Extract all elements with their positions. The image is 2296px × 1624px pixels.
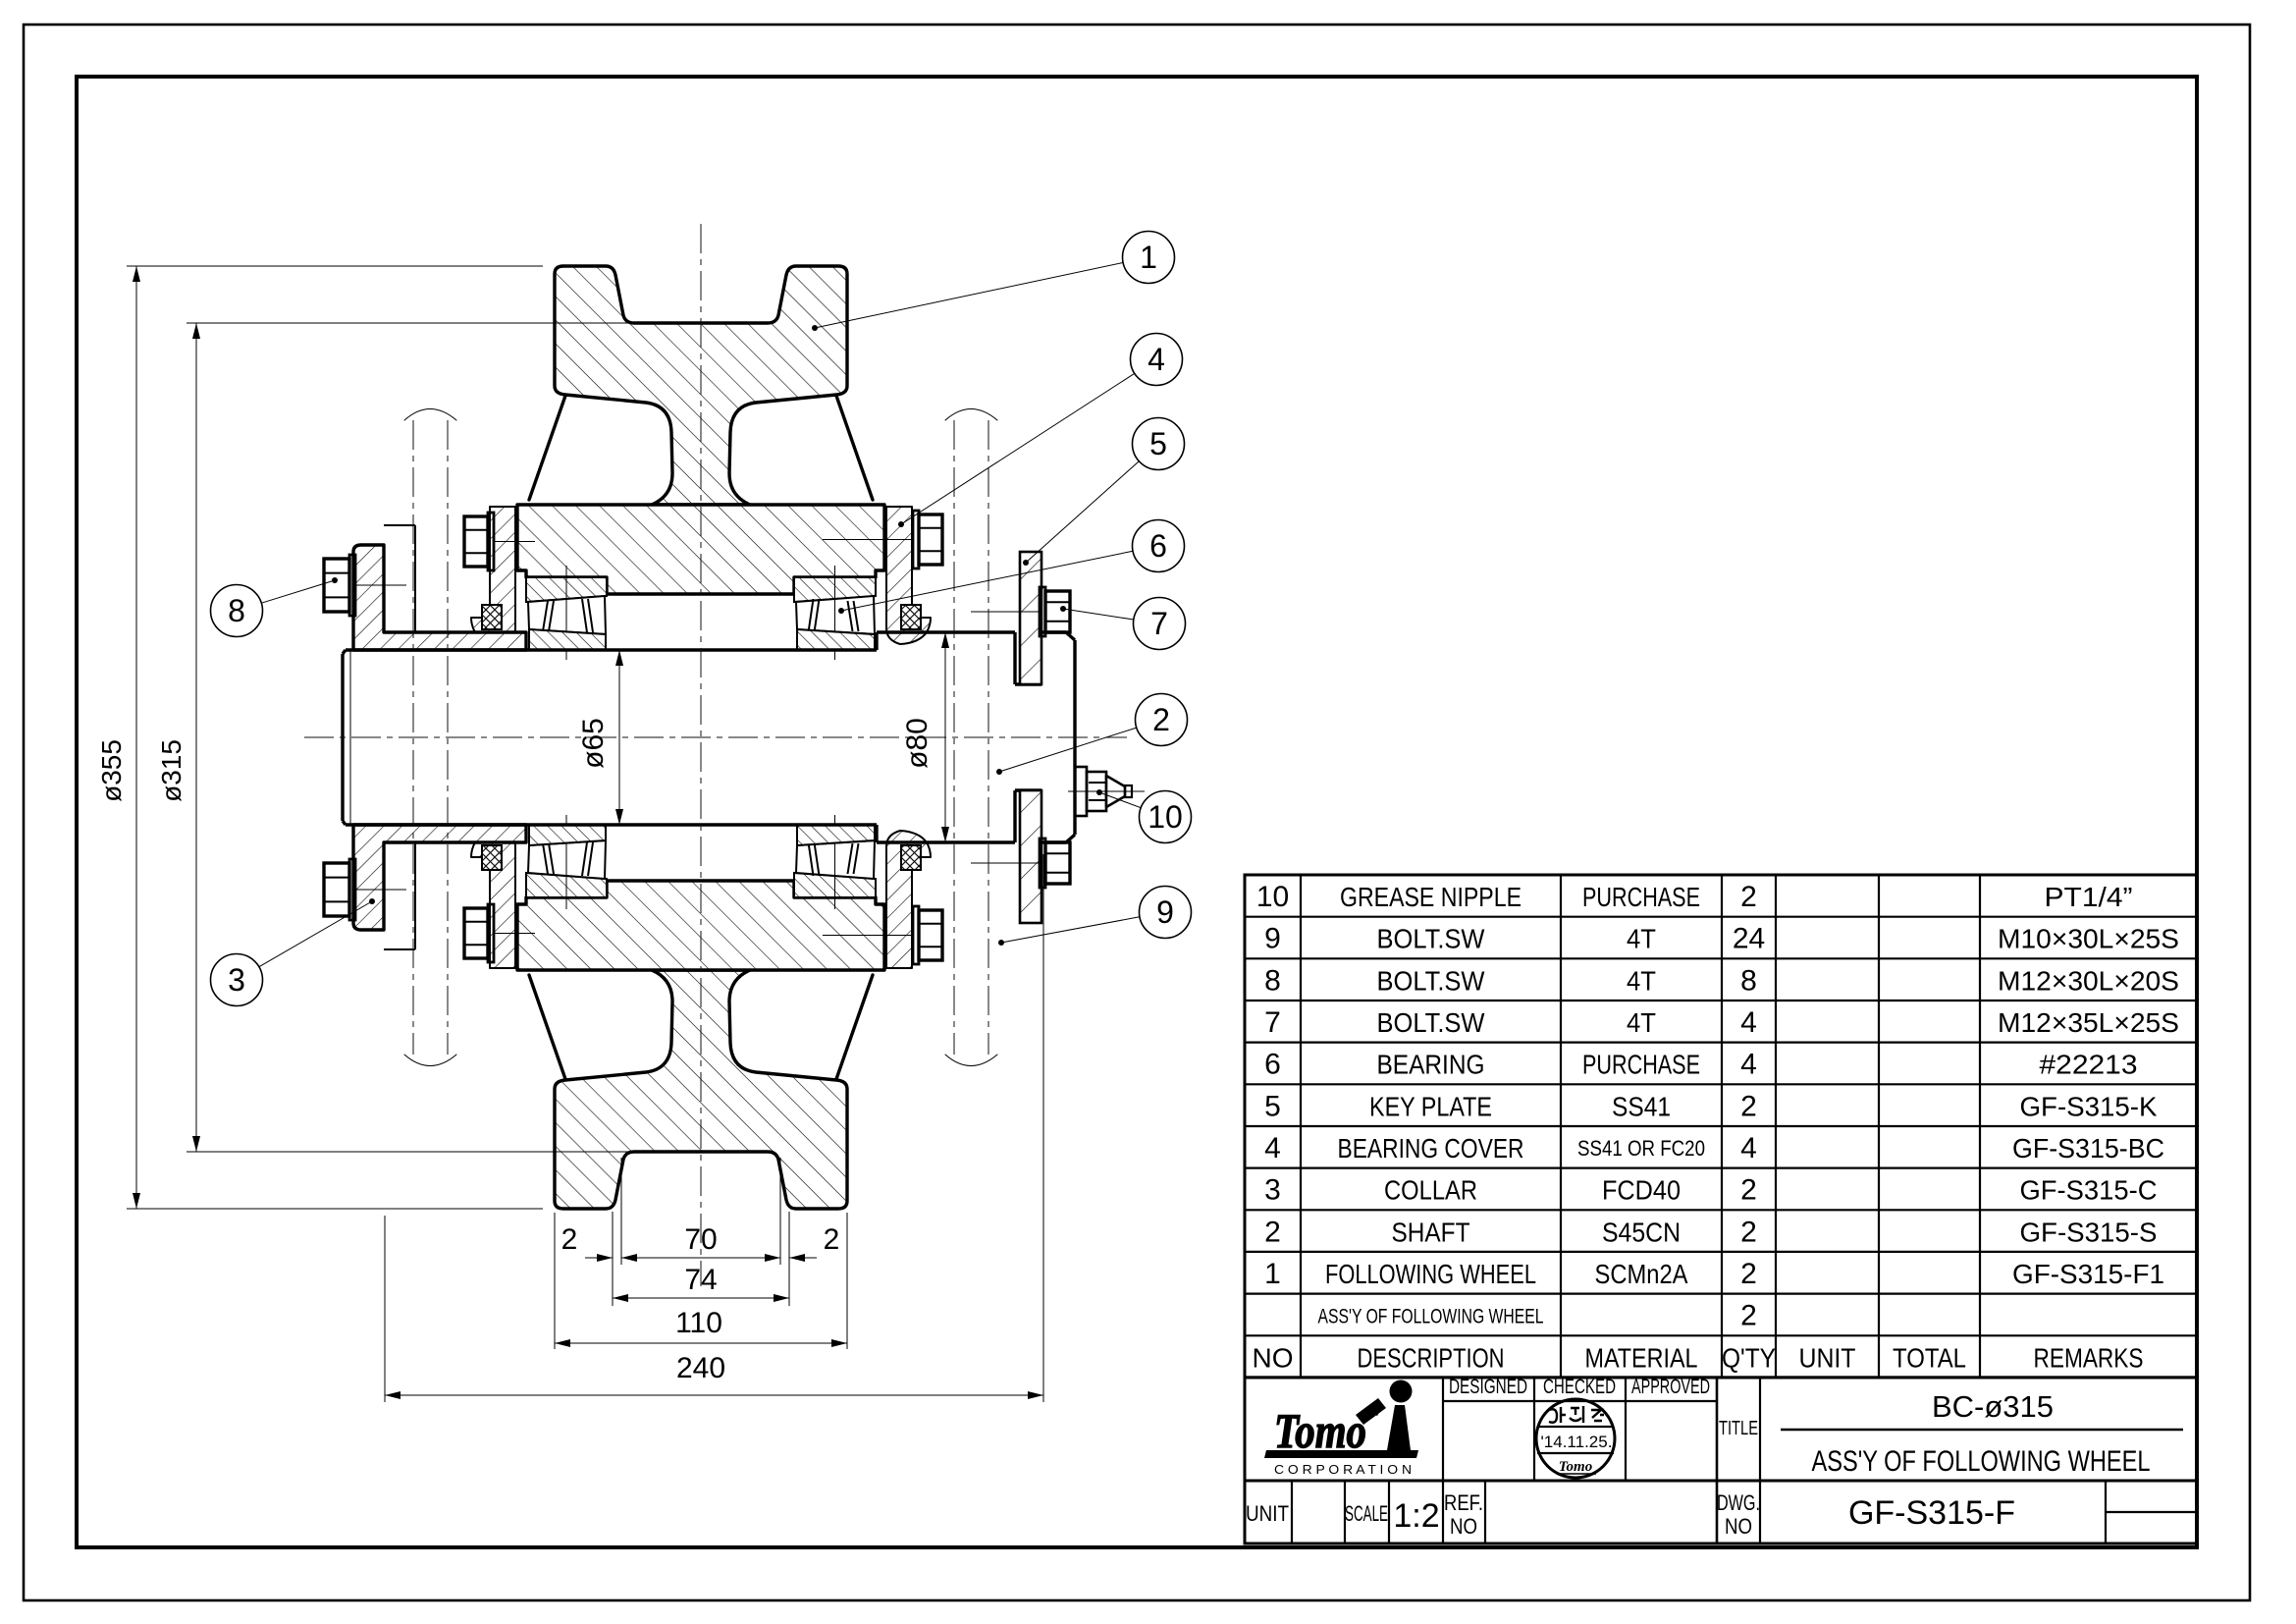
svg-text:4: 4 bbox=[1740, 1049, 1757, 1081]
svg-text:TOTAL: TOTAL bbox=[1893, 1342, 1966, 1373]
svg-text:240: 240 bbox=[676, 1352, 725, 1384]
svg-text:1: 1 bbox=[1264, 1258, 1281, 1290]
svg-text:2: 2 bbox=[824, 1223, 840, 1256]
svg-text:7: 7 bbox=[1264, 1006, 1281, 1039]
svg-text:GF-S315-F: GF-S315-F bbox=[1848, 1494, 2015, 1532]
svg-text:NO: NO bbox=[1450, 1514, 1477, 1539]
svg-text:1: 1 bbox=[1140, 240, 1157, 275]
svg-text:BOLT.SW: BOLT.SW bbox=[1377, 924, 1486, 954]
svg-text:M12×35L×25S: M12×35L×25S bbox=[1998, 1007, 2179, 1038]
svg-text:ASS'Y OF FOLLOWING WHEEL: ASS'Y OF FOLLOWING WHEEL bbox=[1812, 1445, 2151, 1478]
svg-text:GF-S315-C: GF-S315-C bbox=[2020, 1175, 2158, 1206]
svg-text:BEARING COVER: BEARING COVER bbox=[1338, 1133, 1524, 1164]
svg-text:REF.: REF. bbox=[1444, 1490, 1483, 1515]
svg-text:BC-ø315: BC-ø315 bbox=[1932, 1389, 2054, 1424]
svg-text:8: 8 bbox=[1740, 964, 1757, 997]
svg-text:PT1/4”: PT1/4” bbox=[2045, 882, 2133, 912]
svg-text:ASS'Y OF FOLLOWING WHEEL: ASS'Y OF FOLLOWING WHEEL bbox=[1318, 1306, 1544, 1328]
svg-text:4: 4 bbox=[1740, 1006, 1757, 1039]
svg-text:M10×30L×25S: M10×30L×25S bbox=[1998, 924, 2179, 954]
svg-text:3: 3 bbox=[1264, 1174, 1281, 1207]
svg-text:PURCHASE: PURCHASE bbox=[1582, 882, 1700, 912]
svg-text:KEY PLATE: KEY PLATE bbox=[1369, 1091, 1492, 1121]
svg-text:4T: 4T bbox=[1627, 924, 1656, 954]
svg-text:70: 70 bbox=[684, 1223, 717, 1256]
svg-text:UNIT: UNIT bbox=[1799, 1342, 1856, 1373]
svg-text:ø355: ø355 bbox=[96, 739, 127, 802]
svg-text:GF-S315-F1: GF-S315-F1 bbox=[2012, 1259, 2164, 1289]
svg-text:BOLT.SW: BOLT.SW bbox=[1377, 1007, 1486, 1038]
svg-text:10: 10 bbox=[1256, 881, 1289, 913]
svg-text:GF-S315-K: GF-S315-K bbox=[2020, 1091, 2158, 1121]
svg-text:5: 5 bbox=[1149, 426, 1167, 461]
svg-text:S45CN: S45CN bbox=[1602, 1217, 1681, 1247]
svg-text:10: 10 bbox=[1148, 799, 1183, 835]
svg-text:PURCHASE: PURCHASE bbox=[1582, 1050, 1700, 1080]
svg-text:6: 6 bbox=[1264, 1049, 1281, 1081]
svg-text:2: 2 bbox=[1264, 1216, 1281, 1248]
svg-text:4: 4 bbox=[1740, 1132, 1757, 1164]
svg-text:2: 2 bbox=[1740, 1216, 1757, 1248]
svg-text:6: 6 bbox=[1149, 528, 1167, 564]
svg-text:BEARING: BEARING bbox=[1377, 1050, 1485, 1080]
svg-text:MATERIAL: MATERIAL bbox=[1585, 1342, 1698, 1373]
svg-text:M12×30L×20S: M12×30L×20S bbox=[1998, 965, 2179, 996]
svg-text:DESIGNED: DESIGNED bbox=[1449, 1376, 1527, 1398]
svg-text:2: 2 bbox=[1740, 1258, 1757, 1290]
svg-text:UNIT: UNIT bbox=[1246, 1501, 1289, 1526]
svg-text:SCMn2A: SCMn2A bbox=[1595, 1259, 1688, 1289]
svg-text:ø80: ø80 bbox=[901, 718, 934, 769]
svg-text:DWG.: DWG. bbox=[1717, 1490, 1760, 1515]
svg-text:Tomo: Tomo bbox=[1274, 1403, 1366, 1458]
svg-text:8: 8 bbox=[1264, 964, 1281, 997]
svg-text:5: 5 bbox=[1264, 1090, 1281, 1122]
svg-text:2: 2 bbox=[1740, 1174, 1757, 1207]
svg-text:3: 3 bbox=[228, 962, 245, 998]
svg-text:DESCRIPTION: DESCRIPTION bbox=[1358, 1342, 1505, 1373]
svg-text:APPROVED: APPROVED bbox=[1631, 1376, 1710, 1398]
svg-text:74: 74 bbox=[684, 1264, 717, 1296]
svg-text:2: 2 bbox=[1152, 702, 1170, 737]
svg-text:4: 4 bbox=[1148, 342, 1165, 377]
svg-text:4T: 4T bbox=[1627, 965, 1656, 996]
svg-text:SCALE: SCALE bbox=[1345, 1501, 1388, 1526]
svg-text:GF-S315-BC: GF-S315-BC bbox=[2012, 1133, 2164, 1164]
svg-text:BOLT.SW: BOLT.SW bbox=[1377, 965, 1486, 996]
svg-text:GREASE NIPPLE: GREASE NIPPLE bbox=[1340, 882, 1522, 912]
svg-text:4T: 4T bbox=[1627, 1007, 1656, 1038]
svg-text:FOLLOWING WHEEL: FOLLOWING WHEEL bbox=[1325, 1259, 1536, 1289]
svg-text:4: 4 bbox=[1264, 1132, 1281, 1164]
svg-text:1:2: 1:2 bbox=[1393, 1497, 1439, 1535]
svg-text:C O R P O R A T I O N: C O R P O R A T I O N bbox=[1274, 1462, 1412, 1477]
svg-text:2: 2 bbox=[1740, 1300, 1757, 1332]
svg-text:ø65: ø65 bbox=[577, 718, 610, 769]
svg-text:110: 110 bbox=[675, 1307, 722, 1339]
svg-text:TITLE: TITLE bbox=[1719, 1418, 1758, 1439]
svg-text:CHECKED: CHECKED bbox=[1543, 1376, 1616, 1398]
svg-text:7: 7 bbox=[1150, 606, 1168, 641]
svg-text:9: 9 bbox=[1264, 923, 1281, 955]
svg-text:8: 8 bbox=[228, 593, 245, 628]
svg-text:NO: NO bbox=[1253, 1342, 1294, 1373]
svg-text:SS41 OR FC20: SS41 OR FC20 bbox=[1577, 1136, 1705, 1161]
svg-text:2: 2 bbox=[1740, 1090, 1757, 1122]
svg-text:#22213: #22213 bbox=[2040, 1050, 2138, 1080]
svg-text:2: 2 bbox=[561, 1223, 578, 1256]
svg-text:'14.11.25.: '14.11.25. bbox=[1541, 1433, 1613, 1451]
svg-text:SHAFT: SHAFT bbox=[1392, 1217, 1470, 1247]
svg-text:FCD40: FCD40 bbox=[1602, 1175, 1681, 1206]
svg-text:NO: NO bbox=[1725, 1514, 1752, 1539]
svg-text:COLLAR: COLLAR bbox=[1384, 1175, 1477, 1206]
svg-text:2: 2 bbox=[1740, 881, 1757, 913]
svg-text:Q'TY: Q'TY bbox=[1722, 1342, 1776, 1373]
svg-text:ø315: ø315 bbox=[156, 739, 187, 802]
svg-text:Tomo: Tomo bbox=[1559, 1459, 1592, 1475]
svg-text:REMARKS: REMARKS bbox=[2034, 1342, 2144, 1373]
svg-text:SS41: SS41 bbox=[1612, 1091, 1671, 1121]
svg-text:24: 24 bbox=[1733, 923, 1765, 955]
svg-text:9: 9 bbox=[1156, 894, 1174, 930]
svg-text:GF-S315-S: GF-S315-S bbox=[2020, 1217, 2158, 1247]
